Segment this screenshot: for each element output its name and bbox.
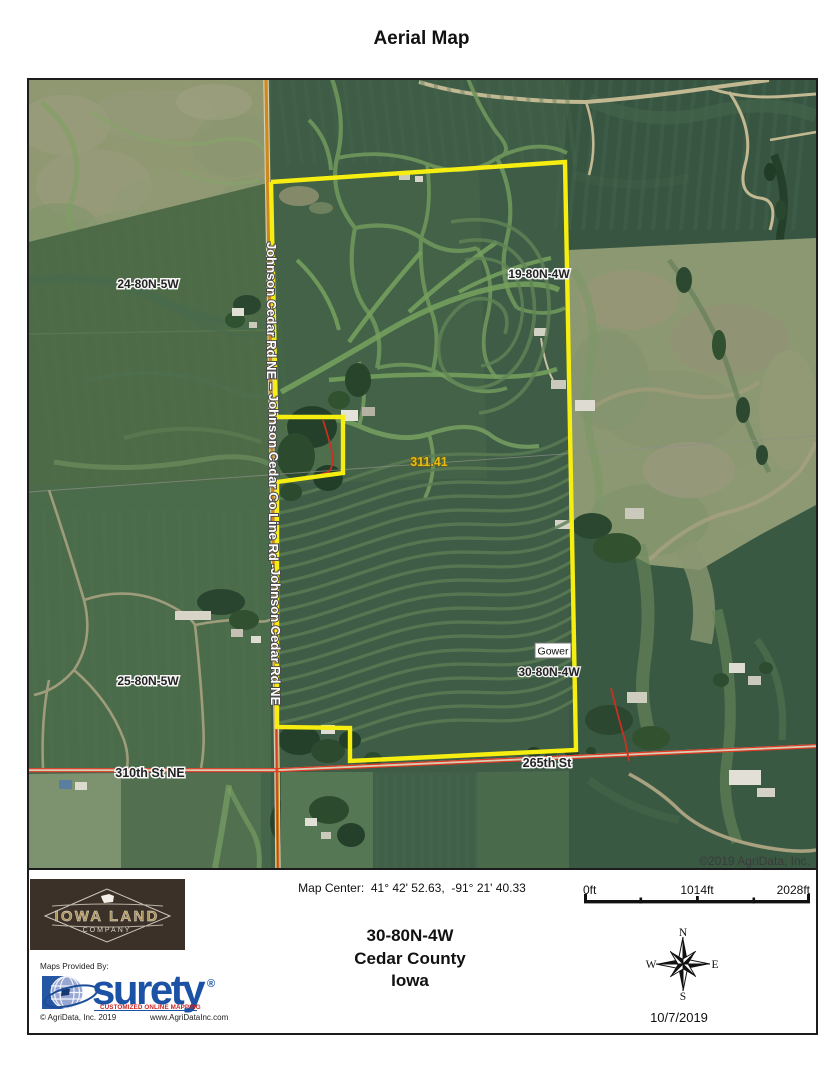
svg-text:COMPANY: COMPANY xyxy=(83,927,132,934)
svg-text:Johnson Cedar Co Line Rd –: Johnson Cedar Co Line Rd – xyxy=(266,394,281,572)
svg-text:25-80N-5W: 25-80N-5W xyxy=(117,674,179,688)
svg-text:E: E xyxy=(711,959,718,971)
svg-text:311.41: 311.41 xyxy=(410,455,448,469)
svg-text:N: N xyxy=(679,927,688,939)
svg-text:19-80N-4W: 19-80N-4W xyxy=(508,267,570,281)
svg-text:Gower: Gower xyxy=(538,646,569,658)
svg-text:W: W xyxy=(646,959,657,971)
svg-text:©2019 AgriData, Inc.: ©2019 AgriData, Inc. xyxy=(699,854,810,868)
svg-text:265th St: 265th St xyxy=(523,756,572,770)
svg-text:Johnson Cedar Rd NE: Johnson Cedar Rd NE xyxy=(268,568,283,706)
svg-text:30-80N-4W: 30-80N-4W xyxy=(518,665,580,679)
svg-text:Johnson Cedar Rd NE –: Johnson Cedar Rd NE – xyxy=(264,242,279,390)
svg-text:24-80N-5W: 24-80N-5W xyxy=(117,277,179,291)
svg-text:310th St NE: 310th St NE xyxy=(115,766,184,780)
svg-text:S: S xyxy=(680,991,686,1003)
svg-text:IOWA LAND: IOWA LAND xyxy=(54,908,159,925)
